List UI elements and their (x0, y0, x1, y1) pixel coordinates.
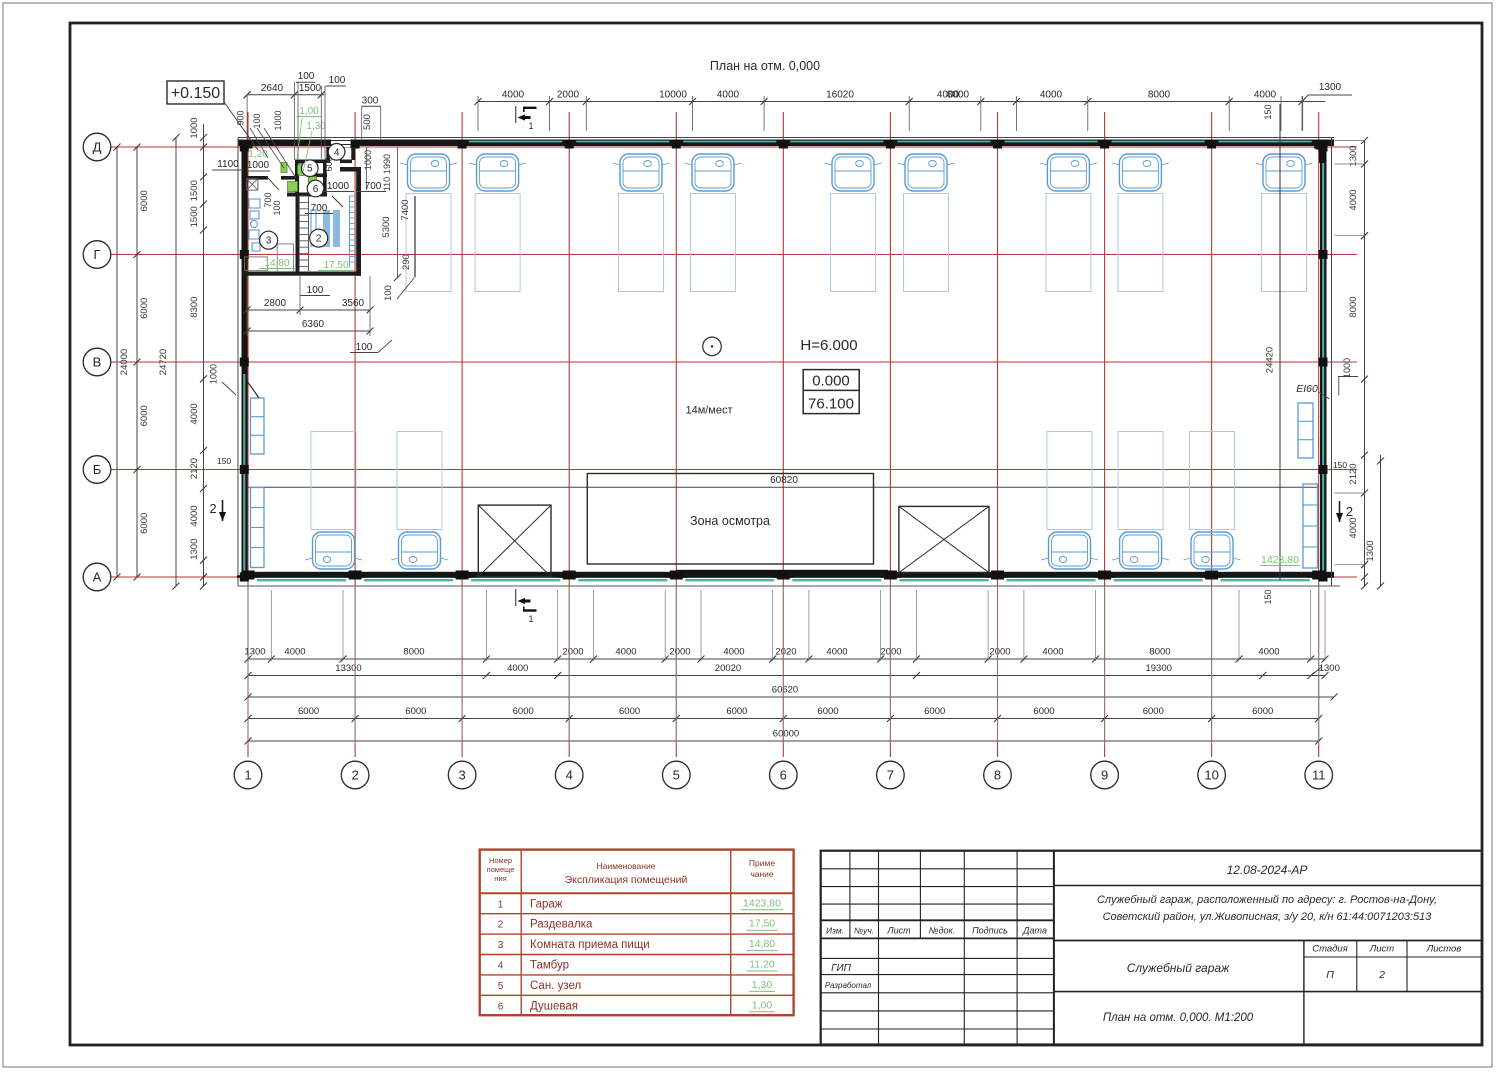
svg-text:1000: 1000 (247, 160, 270, 171)
svg-text:6000: 6000 (298, 706, 319, 717)
svg-text:6000: 6000 (1143, 706, 1164, 717)
svg-text:14,80: 14,80 (749, 938, 775, 950)
svg-text:2: 2 (209, 501, 216, 516)
svg-text:4000: 4000 (1348, 517, 1359, 538)
svg-text:6000: 6000 (405, 706, 426, 717)
svg-text:Номер: Номер (489, 856, 512, 865)
svg-text:900: 900 (236, 110, 246, 125)
svg-text:6000: 6000 (924, 706, 945, 717)
svg-text:2640: 2640 (261, 83, 284, 94)
svg-text:2000: 2000 (562, 647, 583, 658)
svg-text:10: 10 (1204, 768, 1218, 783)
svg-text:План на отм. 0,000: План на отм. 0,000 (710, 59, 820, 73)
svg-text:Лист: Лист (1369, 944, 1395, 955)
svg-text:8000: 8000 (1149, 647, 1170, 658)
svg-text:7400: 7400 (400, 199, 411, 220)
svg-text:2120: 2120 (189, 458, 200, 479)
svg-text:6000: 6000 (619, 706, 640, 717)
svg-text:Дата: Дата (1022, 926, 1047, 936)
svg-text:60000: 60000 (773, 729, 799, 740)
svg-text:1300: 1300 (1348, 145, 1359, 166)
svg-text:6000: 6000 (1252, 706, 1273, 717)
svg-text:100: 100 (298, 71, 315, 82)
svg-text:1500: 1500 (189, 206, 200, 227)
svg-text:Гараж: Гараж (530, 898, 563, 910)
svg-text:24000: 24000 (119, 349, 130, 375)
svg-text:1: 1 (498, 899, 504, 910)
svg-text:4000: 4000 (189, 505, 200, 526)
svg-text:1000: 1000 (327, 181, 350, 192)
svg-text:6000: 6000 (139, 405, 150, 426)
svg-text:4000: 4000 (189, 403, 200, 424)
svg-text:6360: 6360 (302, 319, 325, 330)
svg-text:4: 4 (566, 768, 573, 783)
svg-text:4000: 4000 (826, 647, 847, 658)
svg-text:10000: 10000 (659, 90, 687, 101)
svg-text:2: 2 (351, 768, 358, 783)
svg-text:1: 1 (244, 768, 251, 783)
svg-text:2000: 2000 (557, 90, 580, 101)
svg-text:Н=6.000: Н=6.000 (800, 337, 857, 354)
svg-text:6000: 6000 (139, 513, 150, 534)
svg-text:100: 100 (329, 75, 346, 86)
svg-text:24720: 24720 (158, 349, 169, 375)
svg-text:6: 6 (780, 768, 787, 783)
svg-text:6: 6 (313, 184, 319, 195)
svg-text:5: 5 (307, 164, 313, 175)
svg-text:13300: 13300 (335, 663, 361, 674)
svg-text:№док.: №док. (929, 926, 955, 936)
svg-text:1300: 1300 (244, 647, 265, 658)
svg-text:Комната приема пищи: Комната приема пищи (530, 939, 650, 951)
svg-text:0.000: 0.000 (812, 373, 850, 390)
svg-text:6: 6 (498, 1001, 504, 1012)
svg-text:Сан. узел: Сан. узел (530, 980, 581, 992)
svg-text:Д: Д (93, 140, 102, 155)
svg-text:6000: 6000 (817, 706, 838, 717)
svg-text:4000: 4000 (507, 663, 528, 674)
svg-text:5300: 5300 (381, 216, 392, 237)
svg-text:4000: 4000 (1258, 647, 1279, 658)
svg-text:1000: 1000 (189, 117, 200, 138)
svg-text:24420: 24420 (1265, 347, 1276, 373)
svg-text:19300: 19300 (1145, 663, 1171, 674)
svg-text:100: 100 (307, 285, 324, 296)
svg-text:помеще: помеще (487, 865, 515, 874)
svg-text:150: 150 (1333, 460, 1347, 470)
svg-text:60820: 60820 (770, 475, 798, 486)
svg-text:1,30: 1,30 (752, 979, 773, 991)
svg-text:16020: 16020 (826, 90, 854, 101)
svg-text:1300: 1300 (1319, 663, 1340, 674)
svg-text:4000: 4000 (502, 90, 525, 101)
svg-text:17,50: 17,50 (749, 918, 775, 930)
svg-text:1000: 1000 (208, 364, 218, 384)
svg-text:ния: ния (494, 874, 506, 883)
svg-text:4000: 4000 (284, 647, 305, 658)
svg-text:6000: 6000 (139, 298, 150, 319)
svg-text:8300: 8300 (189, 297, 200, 318)
svg-text:чание: чание (750, 869, 774, 879)
svg-text:П: П (1326, 969, 1334, 981)
svg-text:+0.150: +0.150 (171, 85, 220, 102)
svg-text:1000: 1000 (363, 150, 373, 170)
svg-text:4000: 4000 (615, 647, 636, 658)
svg-text:Изм.: Изм. (826, 926, 844, 936)
svg-text:Наименование: Наименование (597, 861, 656, 871)
svg-text:14,80: 14,80 (264, 258, 289, 269)
svg-text:290: 290 (401, 254, 412, 270)
svg-text:9: 9 (1101, 768, 1108, 783)
svg-text:20020: 20020 (715, 663, 741, 674)
svg-text:8000: 8000 (1148, 90, 1171, 101)
svg-text:3: 3 (458, 768, 465, 783)
svg-text:Служебный гараж, расположенны: Служебный гараж, расположенный по адресу… (1097, 894, 1437, 906)
svg-text:11,20: 11,20 (749, 959, 775, 971)
svg-text:4: 4 (334, 147, 340, 158)
svg-text:14м/мест: 14м/мест (685, 405, 732, 417)
svg-text:Лист: Лист (886, 926, 911, 936)
svg-text:1100: 1100 (217, 159, 239, 170)
svg-text:1423,80: 1423,80 (743, 897, 781, 909)
svg-text:100: 100 (252, 113, 262, 128)
svg-text:4: 4 (498, 961, 504, 972)
svg-text:2: 2 (498, 920, 504, 931)
svg-text:Тамбур: Тамбур (530, 960, 569, 972)
svg-text:А: А (93, 570, 102, 585)
svg-text:100: 100 (356, 342, 373, 353)
svg-text:Зона осмотра: Зона осмотра (690, 514, 770, 528)
svg-text:Душевая: Душевая (530, 1000, 578, 1012)
svg-text:6000: 6000 (726, 706, 747, 717)
svg-text:EI60: EI60 (1296, 383, 1318, 395)
svg-text:1500: 1500 (299, 83, 322, 94)
svg-text:100: 100 (272, 200, 282, 215)
svg-text:ГИП: ГИП (831, 963, 852, 974)
svg-text:1300: 1300 (1319, 82, 1342, 93)
svg-text:Б: Б (93, 462, 102, 477)
svg-text:6000: 6000 (139, 190, 150, 211)
svg-text:1500: 1500 (189, 180, 200, 201)
svg-text:№уч.: №уч. (854, 926, 874, 936)
svg-text:76.100: 76.100 (808, 396, 854, 413)
svg-text:5: 5 (498, 981, 504, 992)
svg-text:8000: 8000 (403, 647, 424, 658)
svg-text:1,20: 1,20 (248, 149, 268, 160)
svg-text:1300: 1300 (1365, 540, 1376, 561)
svg-text:Экспликация помещений: Экспликация помещений (565, 874, 688, 886)
svg-text:План на отм. 0,000. М1:200: План на отм. 0,000. М1:200 (1103, 1012, 1254, 1024)
svg-text:1300: 1300 (189, 539, 200, 560)
svg-text:Листов: Листов (1426, 944, 1462, 955)
svg-text:2: 2 (316, 234, 322, 245)
svg-text:150: 150 (1263, 589, 1273, 604)
svg-text:700: 700 (311, 203, 328, 214)
svg-text:4000: 4000 (1040, 90, 1063, 101)
svg-text:4000: 4000 (1254, 90, 1277, 101)
svg-text:150: 150 (1263, 104, 1273, 119)
svg-text:Разработал: Разработал (825, 981, 872, 990)
svg-text:4000: 4000 (723, 647, 744, 658)
svg-text:6000: 6000 (1033, 706, 1054, 717)
svg-text:4000: 4000 (717, 90, 740, 101)
svg-text:В: В (93, 355, 102, 370)
svg-text:500: 500 (362, 114, 373, 130)
svg-text:11: 11 (1312, 768, 1326, 783)
svg-text:8000: 8000 (1348, 296, 1359, 317)
svg-text:1,00: 1,00 (299, 106, 319, 117)
svg-text:Стадия: Стадия (1312, 944, 1348, 955)
svg-text:1: 1 (528, 614, 533, 624)
svg-text:2: 2 (1378, 969, 1385, 981)
svg-text:1990: 1990 (382, 154, 392, 174)
svg-text:150: 150 (217, 456, 231, 466)
svg-text:1423,80: 1423,80 (1261, 554, 1299, 566)
svg-text:7: 7 (887, 768, 894, 783)
svg-text:110: 110 (382, 177, 392, 191)
svg-text:4000: 4000 (1042, 647, 1063, 658)
svg-text:1,00: 1,00 (752, 999, 773, 1011)
svg-text:2800: 2800 (264, 298, 287, 309)
svg-text:8000: 8000 (947, 90, 970, 101)
svg-text:100: 100 (383, 285, 394, 301)
svg-text:Подпись: Подпись (972, 926, 1008, 936)
svg-text:4000: 4000 (1348, 189, 1359, 210)
svg-text:Раздевалка: Раздевалка (530, 919, 593, 931)
svg-text:1000: 1000 (1342, 358, 1352, 378)
svg-text:700: 700 (365, 181, 382, 192)
svg-text:2000: 2000 (669, 647, 690, 658)
svg-text:600: 600 (324, 156, 334, 171)
svg-text:12.08-2024-АР: 12.08-2024-АР (1227, 863, 1308, 877)
svg-text:3560: 3560 (342, 298, 365, 309)
svg-text:60620: 60620 (772, 685, 798, 696)
svg-text:1: 1 (528, 121, 533, 131)
svg-text:Советский район, ул.Живописная: Советский район, ул.Живописная, з/у 20, … (1103, 911, 1433, 923)
svg-text:Г: Г (93, 247, 100, 262)
svg-text:2000: 2000 (880, 647, 901, 658)
svg-text:2000: 2000 (989, 647, 1010, 658)
svg-text:17,50: 17,50 (323, 260, 348, 271)
svg-text:Приме: Приме (749, 858, 775, 868)
svg-text:3: 3 (266, 236, 272, 247)
svg-text:300: 300 (362, 96, 379, 107)
svg-text:Служебный гараж: Служебный гараж (1127, 961, 1230, 975)
svg-text:5: 5 (673, 768, 680, 783)
svg-text:2020: 2020 (775, 647, 796, 658)
svg-text:2120: 2120 (1348, 463, 1359, 484)
svg-text:2: 2 (1346, 504, 1353, 519)
svg-text:6000: 6000 (513, 706, 534, 717)
svg-text:1,30: 1,30 (306, 121, 326, 132)
svg-text:3: 3 (498, 940, 504, 951)
svg-text:8: 8 (994, 768, 1001, 783)
svg-text:1000: 1000 (273, 110, 283, 130)
